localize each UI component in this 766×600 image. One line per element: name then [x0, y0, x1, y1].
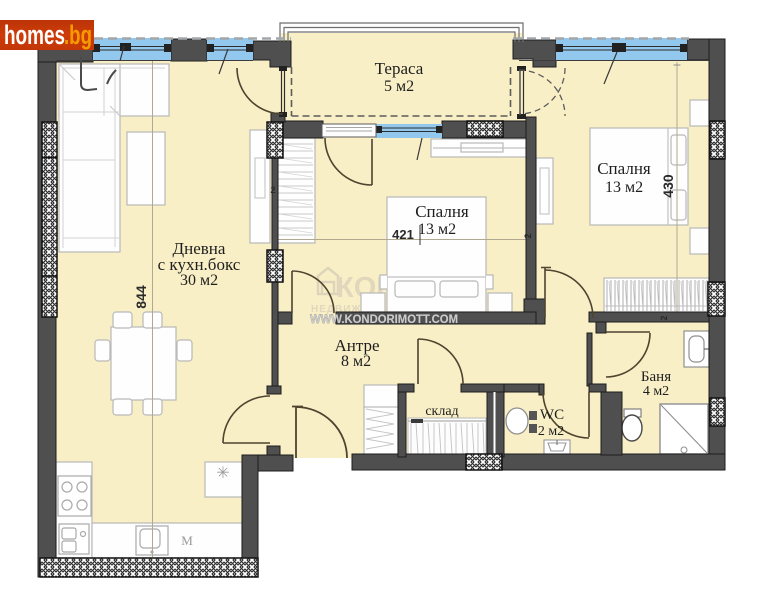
svg-text:.bg: .bg: [64, 20, 92, 50]
svg-text:✳: ✳: [216, 465, 229, 482]
svg-text:844: 844: [133, 285, 149, 309]
svg-text:2: 2: [523, 233, 533, 238]
svg-text:8 м2: 8 м2: [341, 353, 371, 370]
svg-text:30 м2: 30 м2: [180, 272, 218, 289]
svg-text:Спалня: Спалня: [597, 159, 651, 178]
svg-text:430: 430: [660, 174, 676, 198]
svg-text:Баня: Баня: [641, 369, 671, 385]
svg-text:WWW.KONDORIMOTT.COM: WWW.KONDORIMOTT.COM: [310, 312, 458, 326]
svg-text:13 м2: 13 м2: [605, 179, 643, 196]
svg-text:WC: WC: [540, 407, 564, 423]
svg-text:склад: склад: [425, 404, 458, 419]
svg-text:2: 2: [659, 315, 669, 320]
svg-text:М: М: [181, 533, 193, 548]
svg-text:421: 421: [392, 227, 414, 242]
svg-text:homes: homes: [4, 20, 65, 50]
svg-text:2 м2: 2 м2: [538, 424, 564, 439]
svg-text:2: 2: [270, 185, 275, 195]
svg-text:13 м2: 13 м2: [418, 221, 456, 238]
svg-text:4 м2: 4 м2: [643, 384, 669, 399]
svg-text:5 м2: 5 м2: [384, 78, 414, 95]
svg-text:Спалня: Спалня: [415, 202, 469, 221]
svg-text:Тераса: Тераса: [375, 59, 424, 78]
